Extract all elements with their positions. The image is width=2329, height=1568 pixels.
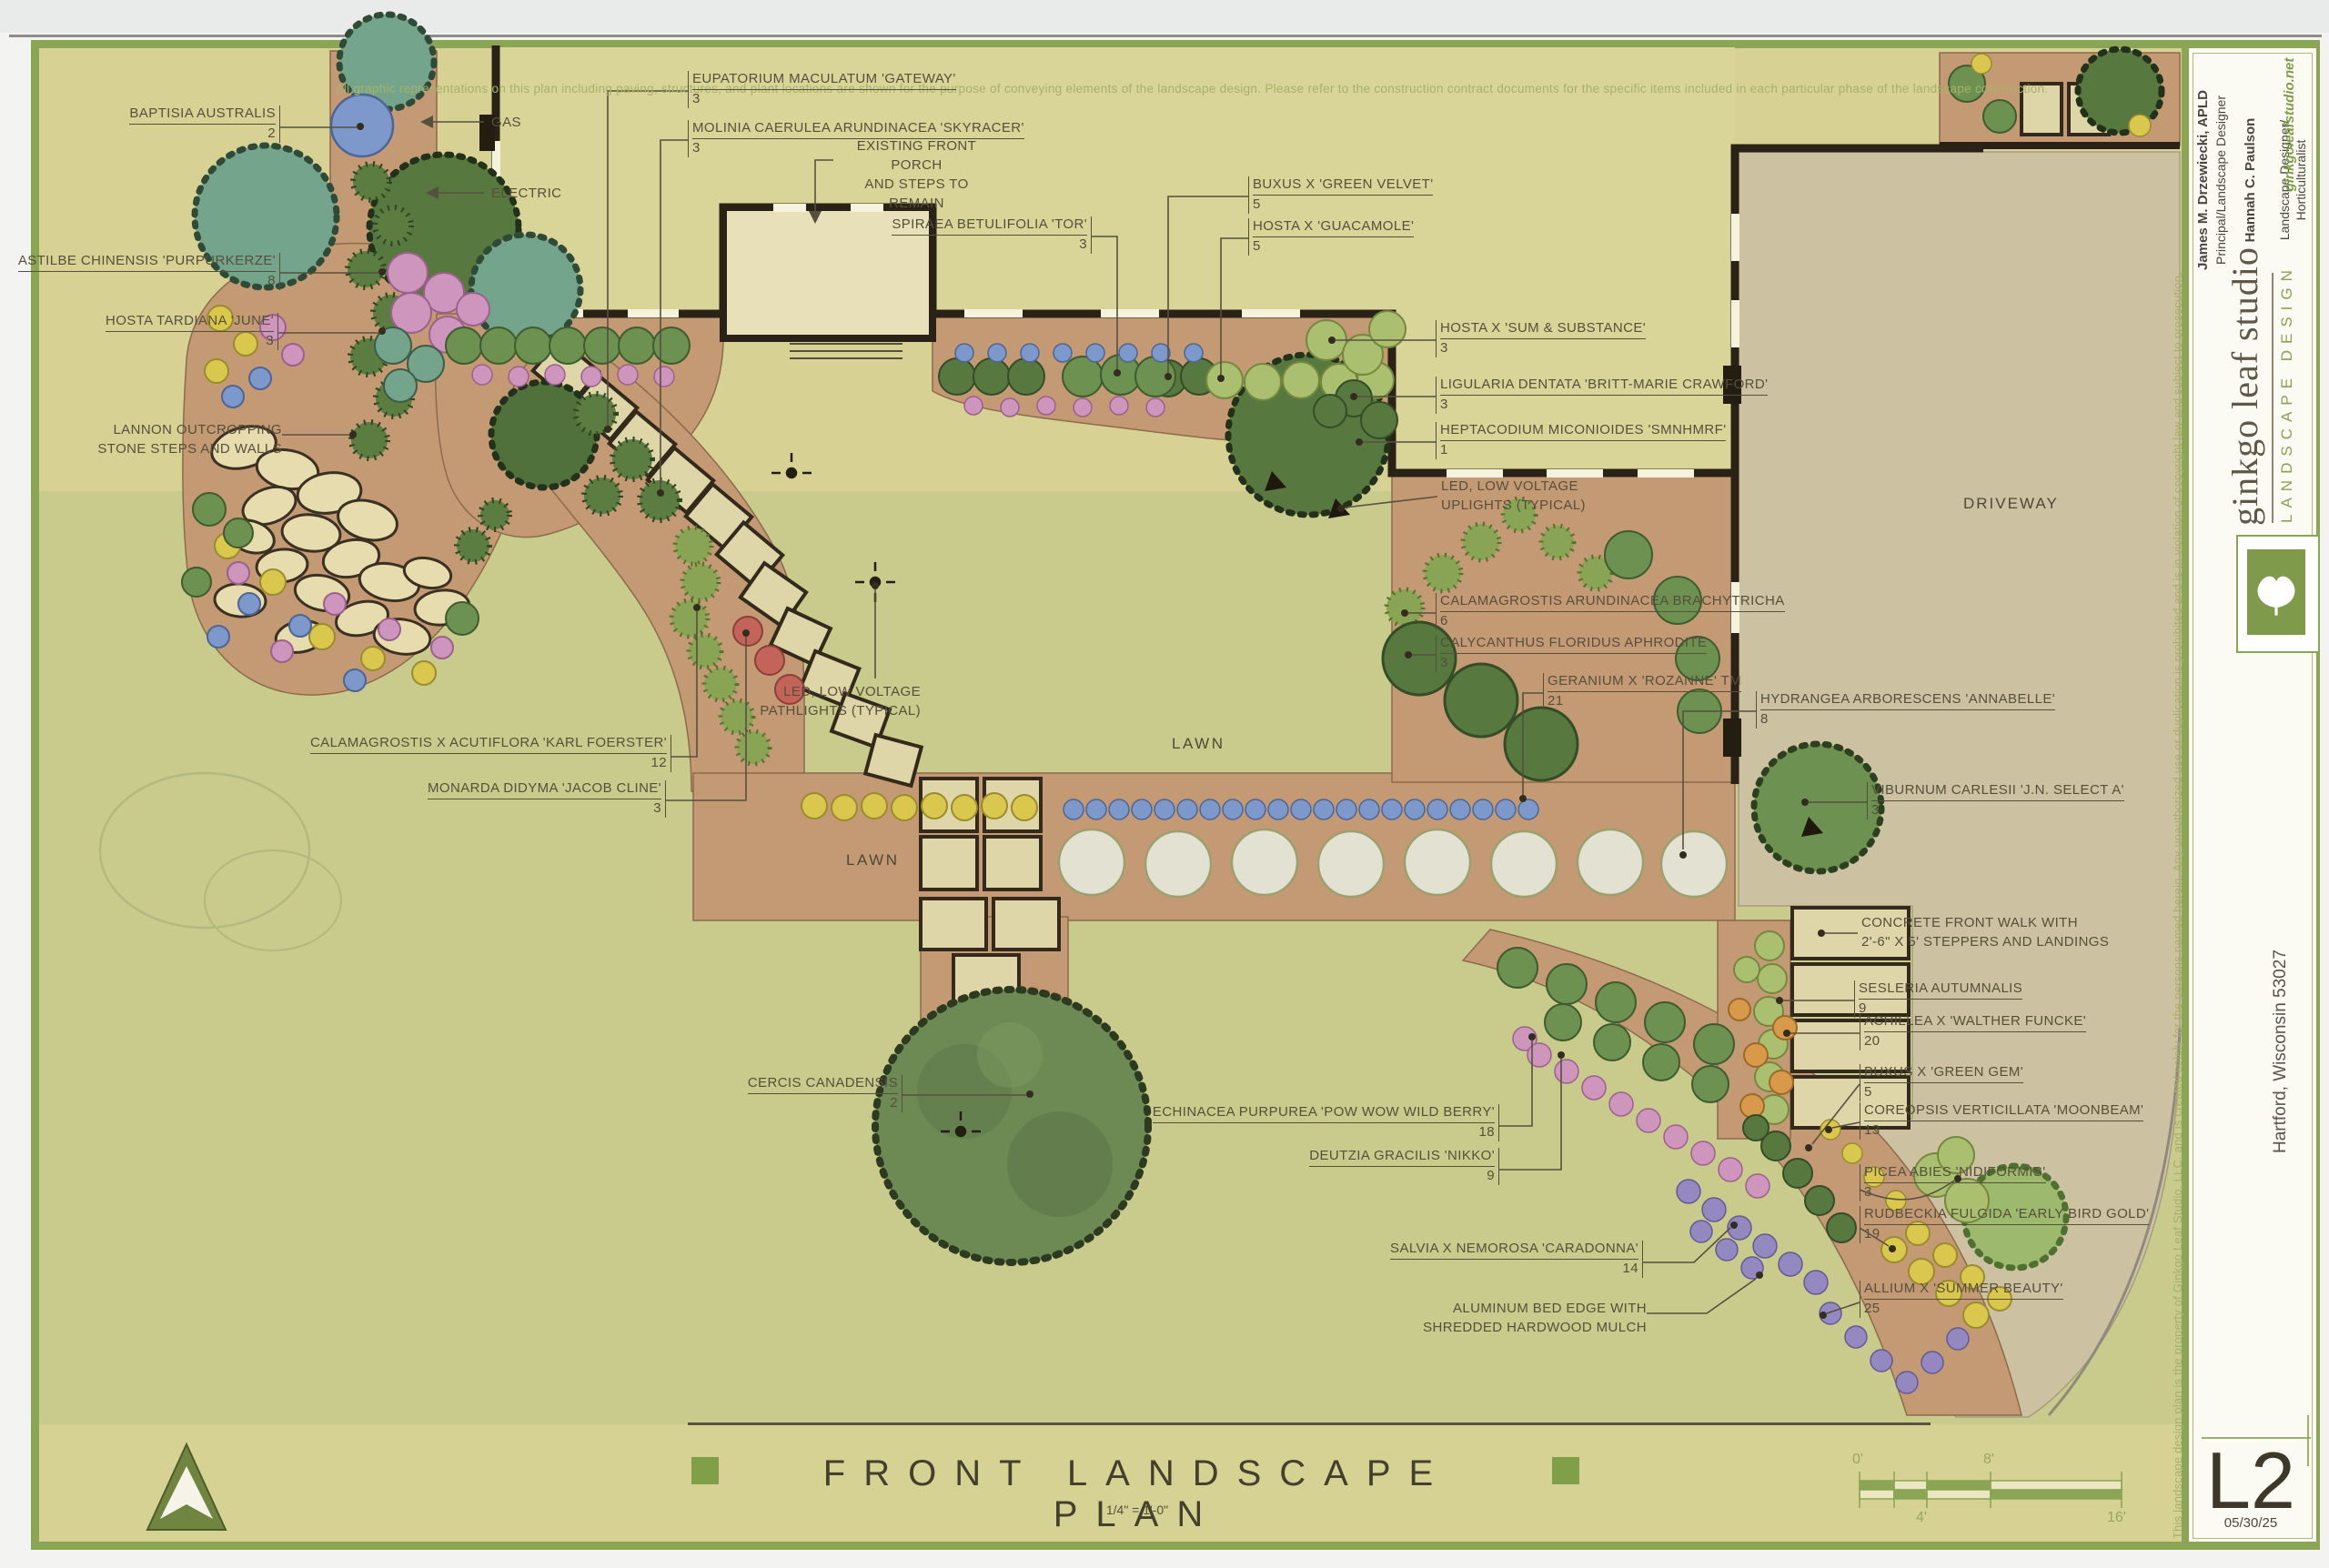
note-lannon-stone: LANNON OUTCROPPING STONE STEPS AND WALLS bbox=[97, 420, 282, 458]
tree-canopy bbox=[491, 382, 597, 487]
scale-0: 0' bbox=[1852, 1452, 1863, 1468]
callout-hosta-june: HOSTA TARDIANA 'JUNE'3 bbox=[106, 313, 278, 350]
driveway-label: DRIVEWAY bbox=[1963, 495, 2059, 513]
plan-title: FRONT LANDSCAPE PLAN bbox=[728, 1453, 1547, 1535]
lawn-label-center: LAWN bbox=[1172, 735, 1225, 753]
title-square-left bbox=[691, 1457, 719, 1484]
callout-ligularia: LIGULARIA DENTATA 'BRITT-MARIE CRAWFORD'… bbox=[1436, 377, 1768, 414]
callout-salvia: SALVIA X NEMOROSA 'CARADONNA'14 bbox=[1390, 1241, 1643, 1278]
callout-echinacea: ECHINACEA PURPUREA 'POW WOW WILD BERRY'1… bbox=[1153, 1104, 1499, 1141]
copyright-text: This landscape design plan is the proper… bbox=[2171, 272, 2184, 1539]
callout-calycanthus: CALYCANTHUS FLORIDUS APHRODITE3 bbox=[1436, 635, 1707, 672]
scale-16: 16' bbox=[2107, 1510, 2126, 1526]
studio-rule bbox=[2272, 273, 2274, 523]
note-gas: GAS bbox=[491, 113, 521, 132]
note-electric: ELECTRIC bbox=[491, 184, 561, 203]
viburnum-tree bbox=[1754, 744, 1881, 871]
callout-hosta-guacamole: HOSTA X 'GUACAMOLE'5 bbox=[1248, 218, 1414, 256]
callout-sesleria: SESLERIA AUTUMNALIS9 bbox=[1854, 980, 2022, 1018]
title-square-right bbox=[1552, 1457, 1579, 1484]
studio-tagline: LANDSCAPE DESIGN bbox=[2278, 264, 2296, 523]
sheet-mark-v bbox=[2307, 1415, 2309, 1466]
callout-rudbeckia: RUDBECKIA FULGIDA 'EARLY BIRD GOLD'19 bbox=[1860, 1206, 2149, 1243]
title-rule bbox=[688, 1422, 1931, 1425]
callout-picea: PICEA ABIES 'NIDIFORMIS'3 bbox=[1860, 1164, 2046, 1201]
callout-deutzia: DEUTZIA GRACILIS 'NIKKO'9 bbox=[1309, 1148, 1499, 1185]
callout-buxus-green-velvet: BUXUS X 'GREEN VELVET'5 bbox=[1248, 176, 1433, 214]
callout-buxus-green-gem: BUXUS X 'GREEN GEM'5 bbox=[1860, 1064, 2023, 1101]
project-location: Hartford, Wisconsin 53027 bbox=[2271, 950, 2291, 1153]
landscape-plan-sheet: All graphic representations on this plan… bbox=[0, 0, 2329, 1568]
callout-hydrangea: HYDRANGEA ARBORESCENS 'ANNABELLE'8 bbox=[1756, 691, 2055, 729]
callout-coreopsis: COREOPSIS VERTICILLATA 'MOONBEAM'13 bbox=[1860, 1102, 2143, 1140]
callout-viburnum: VIBURNUM CARLESII 'J.N. SELECT A'3 bbox=[1867, 782, 2124, 819]
callout-geranium: GERANIUM X 'ROZANNE' TM21 bbox=[1543, 673, 1741, 710]
sheet-number: L2 bbox=[2200, 1441, 2302, 1521]
callout-hosta-sum-substance: HOSTA X 'SUM & SUBSTANCE'3 bbox=[1436, 320, 1646, 357]
scale-8: 8' bbox=[1983, 1452, 1994, 1468]
callout-achillea: ACHILLEA X 'WALTHER FUNCKE'20 bbox=[1860, 1013, 2086, 1050]
disclaimer-text: All graphic representations on this plan… bbox=[237, 82, 2147, 95]
studio-website-link[interactable]: ginkgoleafstudio.net bbox=[2282, 56, 2297, 193]
note-uplights: LED, LOW VOLTAGE UPLIGHTS (TYPICAL) bbox=[1441, 477, 1586, 515]
note-existing-porch: EXISTING FRONT PORCH AND STEPS TO REMAIN bbox=[837, 136, 996, 213]
callout-astilbe: ASTILBE CHINENSIS 'PURPURKERZE'8 bbox=[18, 253, 280, 290]
callout-monarda: MONARDA DIDYMA 'JACOB CLINE'3 bbox=[428, 780, 666, 818]
plan-scale-note: 1/4" = 1'-0" bbox=[1037, 1503, 1237, 1517]
callout-calamagrostis-brachytricha: CALAMAGROSTIS ARUNDINACEA BRACHYTRICHA6 bbox=[1436, 593, 1785, 630]
note-pathlights: LED, LOW VOLTAGE PATHLIGHTS (TYPICAL) bbox=[760, 682, 921, 720]
callout-eupatorium: EUPATORIUM MACULATUM 'GATEWAY'3 bbox=[688, 71, 956, 108]
ginkgo-leaf-icon bbox=[2247, 549, 2305, 635]
lawn-label-left: LAWN bbox=[846, 851, 900, 869]
callout-allium: ALLIUM X 'SUMMER BEAUTY'25 bbox=[1860, 1281, 2063, 1318]
callout-karl-foerster: CALAMAGROSTIS X ACUTIFLORA 'KARL FOERSTE… bbox=[310, 735, 671, 772]
callout-spiraea: SPIRAEA BETULIFOLIA 'TOR'3 bbox=[892, 216, 1092, 254]
callout-baptisia: BAPTISIA AUSTRALIS2 bbox=[129, 106, 280, 143]
scale-4: 4' bbox=[1916, 1510, 1927, 1526]
callout-cercis: CERCIS CANADENSIS2 bbox=[748, 1075, 902, 1112]
note-aluminum-edge: ALUMINUM BED EDGE WITH SHREDDED HARDWOOD… bbox=[1423, 1299, 1647, 1337]
callout-heptacodium: HEPTACODIUM MICONIOIDES 'SMNHMRF'1 bbox=[1436, 422, 1726, 459]
studio-name: ginkgo leaf studio bbox=[2223, 246, 2266, 526]
sheet-date: 05/30/25 bbox=[2200, 1515, 2302, 1531]
studio-logo bbox=[2236, 535, 2320, 653]
note-concrete-walk: CONCRETE FRONT WALK WITH 2'-6" X 5' STEP… bbox=[1861, 913, 2109, 951]
